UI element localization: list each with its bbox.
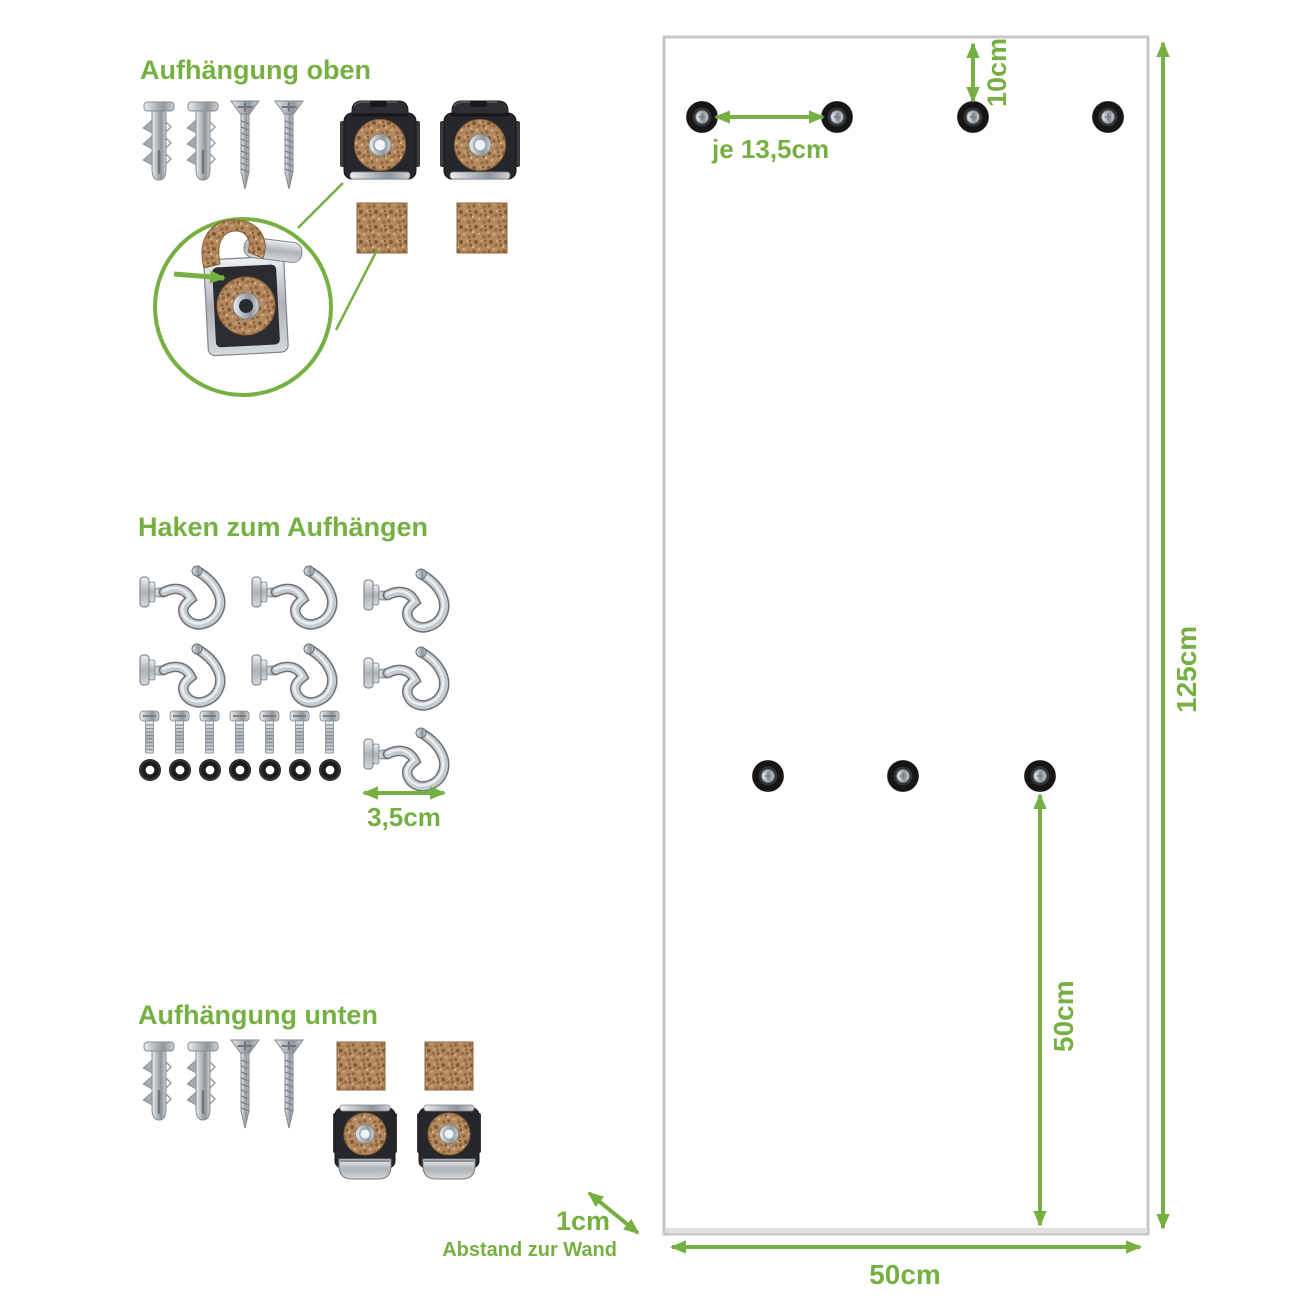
cork-pad-icon [357,203,407,253]
drill-hole-icon [1025,761,1056,792]
wall-gap-caption: Abstand zur Wand [442,1239,617,1261]
washer-icon [259,759,281,781]
bolt-icon [320,711,339,753]
panel-width-label: 50cm [869,1259,941,1290]
drill-hole-icon [687,102,718,133]
section-bottom-mount: Aufhängung unten [138,1000,481,1179]
washer-icon [139,759,161,781]
clip-detail-magnifier [155,183,377,395]
hook-icon [364,728,444,786]
wall-plug-icon [187,1042,218,1120]
section-hooks: Haken zum Aufhängen 3,5cm [138,512,444,832]
hook-icon [252,566,332,624]
diagram-svg: Aufhängung oben Haken zum Auf [0,0,1300,1300]
hook-icon [140,566,220,624]
section-top-mount: Aufhängung oben [140,55,520,395]
wall-plug-icon [187,102,218,180]
screw-icon [231,101,259,189]
section-hooks-title: Haken zum Aufhängen [138,512,428,542]
screw-icon [275,101,303,189]
callout-line [336,250,377,330]
cork-pad-icon [425,1042,473,1090]
washer-icon [289,759,311,781]
hole-spacing-label: je 13,5cm [711,134,829,164]
top-offset-label: 10cm [982,38,1012,107]
mounting-clip-icon [417,1105,481,1179]
bolt-icon [260,711,279,753]
bolt-icon [140,711,159,753]
washer-icon [319,759,341,781]
mounting-instructions-diagram: Aufhängung oben Haken zum Auf [0,0,1300,1300]
panel-bottom-shadow [666,1228,1146,1232]
hook-icon [140,644,220,702]
hook-icon [252,644,332,702]
cork-pad-icon [457,203,507,253]
hook-width-label: 3,5cm [367,802,441,832]
drill-hole-icon [822,102,853,133]
bolt-icon [290,711,309,753]
drill-hole-icon [753,761,784,792]
screw-icon [275,1040,303,1128]
callout-line [298,183,343,228]
panel-diagram: je 13,5cm 10cm 125cm 50cm 50cm 1cm Absta… [442,37,1202,1290]
mounting-clip-icon [333,1105,397,1179]
bolt-icon [170,711,189,753]
drill-hole-icon [1093,102,1124,133]
middle-hole-height-label: 50cm [1048,980,1079,1052]
mounting-clip-icon [340,101,420,179]
hook-icon [364,647,444,705]
section-top-mount-title: Aufhängung oben [140,55,371,85]
clip-detail-drawing [204,256,289,356]
section-bottom-mount-title: Aufhängung unten [138,1000,378,1030]
panel-outline [664,37,1148,1234]
washer-icon [169,759,191,781]
screw-icon [231,1040,259,1128]
panel-height-label: 125cm [1171,626,1202,713]
bolt-icon [230,711,249,753]
mounting-clip-icon [440,101,520,179]
washer-icon [229,759,251,781]
drill-hole-icon [888,761,919,792]
bolt-icon [200,711,219,753]
wall-plug-icon [143,1042,174,1120]
wall-plug-icon [143,102,174,180]
washer-icon [199,759,221,781]
wall-gap-label: 1cm [556,1206,610,1236]
cork-pad-icon [337,1042,385,1090]
hook-icon [364,569,444,627]
